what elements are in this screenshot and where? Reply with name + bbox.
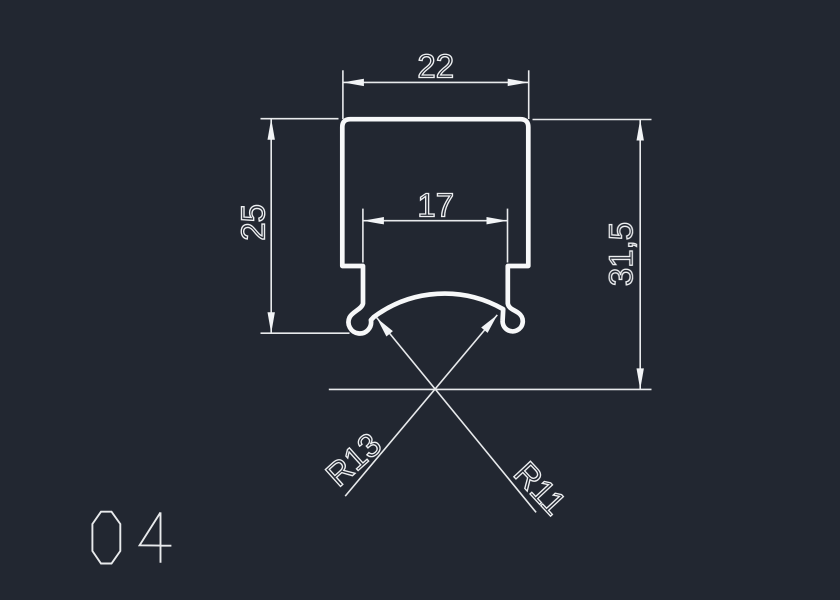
svg-text:31,5: 31,5 [602,222,639,286]
svg-text:17: 17 [417,187,454,224]
svg-text:22: 22 [417,48,454,85]
svg-text:25: 25 [235,204,272,241]
